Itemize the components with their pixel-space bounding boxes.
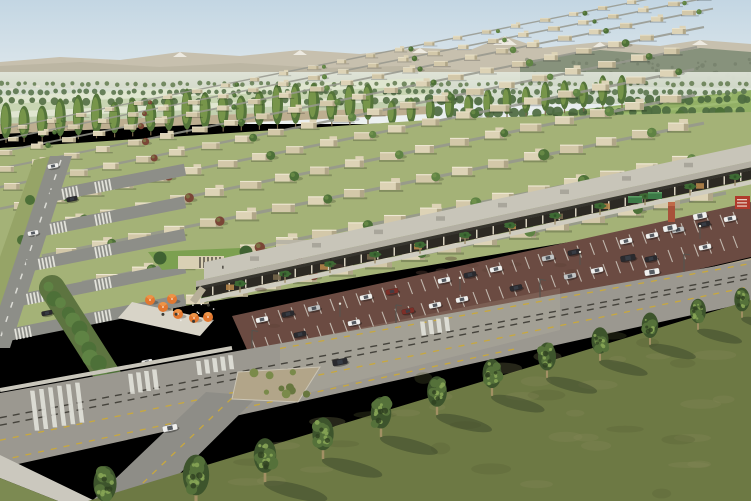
rendering-canvas (0, 0, 751, 501)
aerial-rendering (0, 0, 751, 501)
